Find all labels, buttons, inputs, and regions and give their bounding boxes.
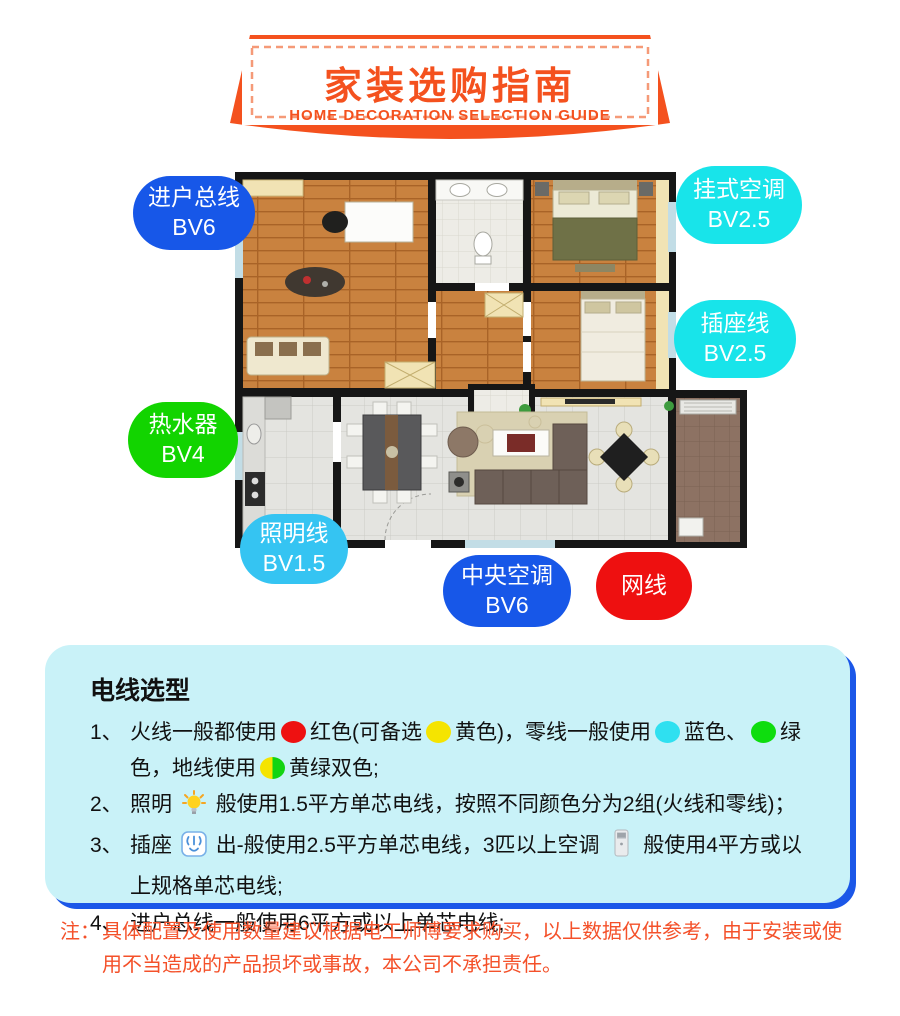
- page: 家装选购指南 HOME DECORATION SELECTION GUIDE: [0, 0, 900, 1016]
- wire-color-dot: [260, 757, 285, 779]
- label-entry-main-wire: 进户总线 BV6: [133, 176, 255, 250]
- wire-section-title: 电线选型: [90, 671, 822, 707]
- wire-selection-panel: 电线选型 1、火线一般都使用红色(可备选黄色)，零线一般使用蓝色、绿色，地线使用…: [45, 645, 850, 903]
- wire-item-number: 1、: [90, 715, 130, 787]
- bedroom-2-bed: [581, 291, 645, 381]
- wire-item-number: 3、: [90, 828, 130, 905]
- label-network-cable: 网线: [596, 552, 692, 620]
- disclaimer-note: 注： 具体配置及使用数量建议根据电工师傅要求购买，以上数据仅供参考，由于安装或使…: [60, 916, 855, 982]
- closet-strip-2: [656, 291, 669, 389]
- air-conditioner-icon: [608, 829, 634, 869]
- wire-color-dot: [751, 721, 776, 743]
- label-lighting-wire: 照明线 BV1.5: [240, 514, 348, 584]
- wire-color-dot: [426, 721, 451, 743]
- socket-icon: [181, 831, 207, 869]
- wire-item-number: 2、: [90, 787, 130, 828]
- header-banner: 家装选购指南 HOME DECORATION SELECTION GUIDE: [230, 33, 670, 145]
- page-subtitle: HOME DECORATION SELECTION GUIDE: [230, 107, 670, 124]
- label-socket-wire: 插座线 BV2.5: [674, 300, 796, 378]
- wire-item-text: 照明 般使用1.5平方单芯电线，按照不同颜色分为2组(火线和零线)；: [130, 787, 822, 828]
- page-title: 家装选购指南: [230, 55, 670, 110]
- wire-item-text: 火线一般都使用红色(可备选黄色)，零线一般使用蓝色、绿色，地线使用黄绿双色;: [130, 715, 822, 787]
- label-water-heater: 热水器 BV4: [128, 402, 238, 478]
- note-prefix: 注：: [60, 916, 102, 982]
- wire-color-dot: [281, 721, 306, 743]
- wire-item-text: 插座 出-般使用2.5平方单芯电线，3匹以上空调 般使用4平方或以上规格单芯电线…: [130, 828, 822, 905]
- wire-color-dot: [655, 721, 680, 743]
- closet-strip: [656, 180, 669, 283]
- note-text: 具体配置及使用数量建议根据电工师傅要求购买，以上数据仅供参考，由于安装或使用不当…: [102, 916, 855, 982]
- wire-item: 1、火线一般都使用红色(可备选黄色)，零线一般使用蓝色、绿色，地线使用黄绿双色;: [90, 715, 822, 787]
- master-bed: [535, 180, 653, 272]
- bulb-icon: [181, 790, 207, 828]
- label-wall-air-conditioner: 挂式空调 BV2.5: [676, 166, 802, 244]
- floor-plan: [235, 172, 747, 548]
- wire-items: 1、火线一般都使用红色(可备选黄色)，零线一般使用蓝色、绿色，地线使用黄绿双色;…: [90, 715, 822, 942]
- wire-item: 3、插座 出-般使用2.5平方单芯电线，3匹以上空调 般使用4平方或以上规格单芯…: [90, 828, 822, 905]
- label-central-air-conditioner: 中央空调 BV6: [443, 555, 571, 627]
- wire-item: 2、照明 般使用1.5平方单芯电线，按照不同颜色分为2组(火线和零线)；: [90, 787, 822, 828]
